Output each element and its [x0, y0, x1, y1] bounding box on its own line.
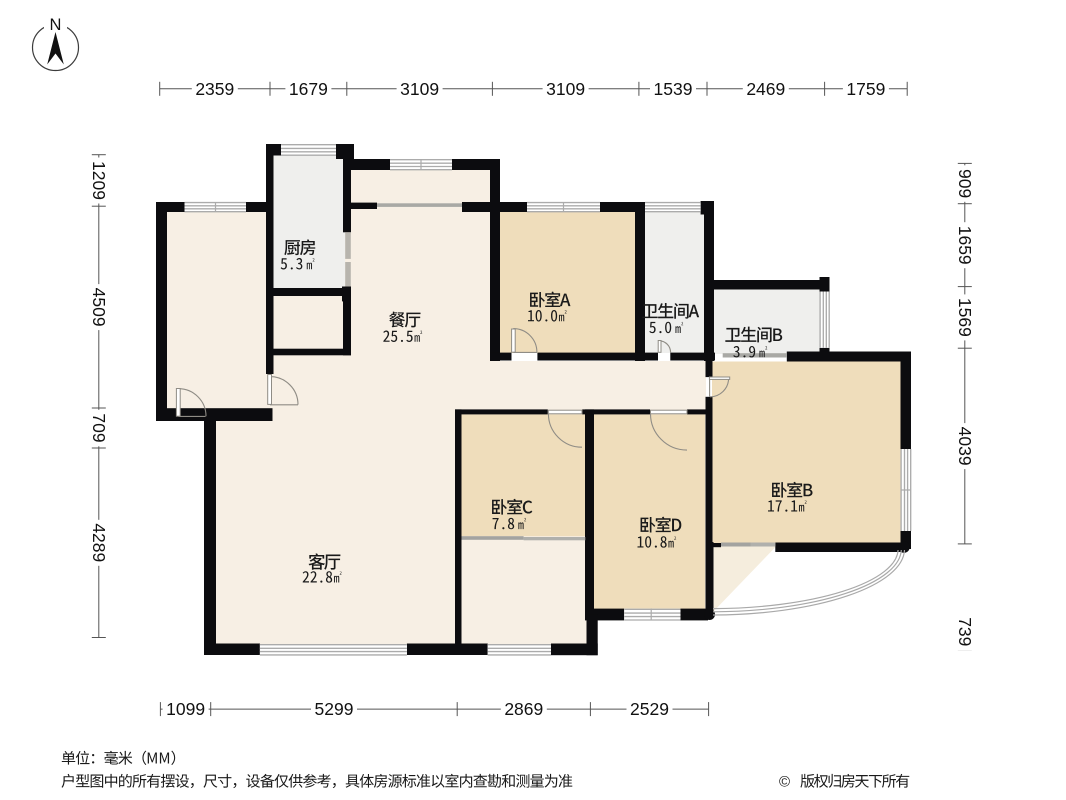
svg-text:4509: 4509	[89, 288, 109, 327]
svg-text:739: 739	[955, 617, 975, 646]
svg-text:709: 709	[89, 413, 109, 442]
svg-text:3109: 3109	[400, 79, 439, 99]
svg-text:4039: 4039	[955, 427, 975, 466]
svg-text:5299: 5299	[315, 699, 354, 719]
svg-text:1539: 1539	[654, 79, 693, 99]
svg-text:3109: 3109	[546, 79, 585, 99]
svg-text:1679: 1679	[289, 79, 328, 99]
svg-text:N: N	[50, 16, 62, 34]
svg-text:909: 909	[955, 169, 975, 198]
svg-text:2869: 2869	[504, 699, 543, 719]
svg-text:1099: 1099	[166, 699, 205, 719]
svg-text:2359: 2359	[195, 79, 234, 99]
svg-text:2529: 2529	[630, 699, 669, 719]
svg-text:4289: 4289	[89, 523, 109, 562]
svg-text:1759: 1759	[846, 79, 885, 99]
svg-text:1569: 1569	[955, 298, 975, 337]
svg-text:2469: 2469	[746, 79, 785, 99]
svg-text:1659: 1659	[955, 226, 975, 265]
svg-text:©: ©	[779, 774, 790, 791]
svg-text:1209: 1209	[89, 161, 109, 200]
